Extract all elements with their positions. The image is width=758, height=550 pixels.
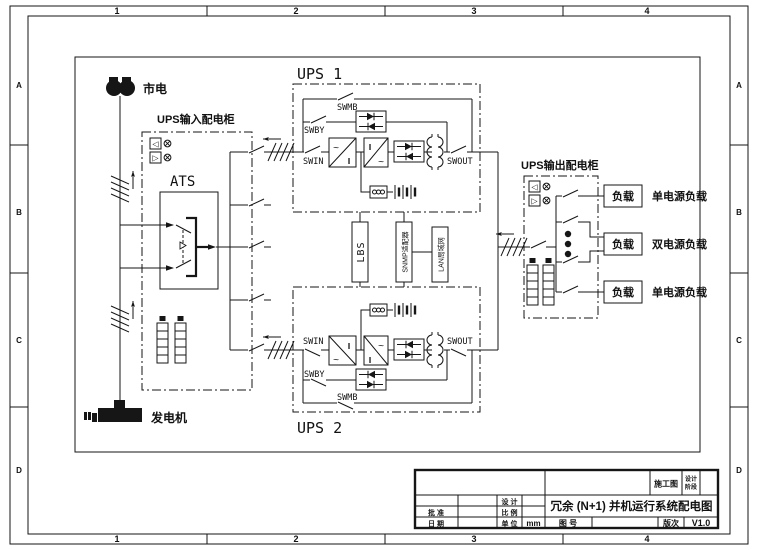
busbar-icon (157, 316, 168, 363)
switch-icon (249, 146, 264, 153)
field-version-value: V1.0 (692, 518, 711, 528)
diode-pair-icon (394, 141, 424, 162)
snmp-label: SNMP适配器 (401, 231, 410, 272)
load-label: 负载 (612, 285, 634, 299)
drawing-title: 冗余 (N+1) 并机运行系统配电图 (550, 499, 713, 513)
fuse-box-icon (370, 304, 387, 316)
rectifier-box: ‖ ~ (329, 336, 356, 366)
busbar-icon (527, 258, 538, 305)
input-cabinet: UPS输入配电柜 ATS (120, 112, 252, 390)
battery-icon (395, 303, 415, 317)
switch-icon (451, 349, 466, 356)
stage-value: 施工图 (654, 479, 678, 489)
battery-icon (395, 185, 415, 199)
load-type-label: 单电源负载 (652, 285, 707, 299)
switch-icon (531, 241, 546, 248)
ats-box (160, 192, 218, 289)
field-approve-label: 批 准 (428, 508, 444, 517)
feeder-branches (230, 137, 294, 359)
ups1-wiring (293, 99, 498, 192)
field-date-label: 日 期 (428, 519, 444, 528)
meter-icon (529, 195, 550, 206)
diode-pair-icon (356, 369, 386, 390)
switch-icon (451, 146, 466, 153)
zone-number: 2 (293, 6, 298, 16)
dc-symbol: ‖ (347, 342, 350, 351)
field-drawing-no-label: 图 号 (559, 519, 577, 528)
ac-symbol: ~ (378, 157, 384, 168)
zone-number: 4 (644, 6, 649, 16)
rectifier-box: ~ ‖ (329, 138, 356, 167)
zone-number: 2 (293, 534, 298, 544)
field-version-label: 版次 (662, 518, 679, 528)
lan-label: LAN局域网 (437, 237, 446, 272)
swout-label: SWOUT (447, 157, 473, 167)
field-unit-label: 单 位 (502, 519, 518, 528)
title-block: 设 计 批 准 比 例 日 期 单 位 mm 施工图 设计 阶段 冗余 (N+1… (415, 470, 718, 528)
ats-switch: ATS (120, 174, 230, 289)
switch-icon (249, 294, 264, 301)
cable-hatch-icon (111, 301, 135, 332)
switch-icon (311, 116, 326, 123)
zone-letter: A (16, 81, 22, 90)
input-cabinet-label: UPS输入配电柜 (157, 112, 235, 126)
output-wiring (498, 152, 604, 350)
zone-letter: C (736, 336, 742, 345)
dc-symbol: ‖ (368, 143, 371, 152)
busbar-icon (543, 258, 554, 305)
stage-label-bottom: 阶段 (685, 483, 697, 491)
swout-label: SWOUT (447, 337, 473, 347)
zone-number: 1 (114, 534, 119, 544)
switch-icon (249, 199, 264, 206)
meter-icon (529, 181, 550, 192)
load-row: 负载 单电源负载 (604, 185, 707, 207)
diode-pair-icon (356, 111, 386, 132)
switch-icon (305, 349, 320, 356)
ac-symbol: ~ (333, 143, 339, 154)
zone-letter: D (16, 466, 22, 475)
switch-icon (563, 216, 578, 223)
zone-letter: C (16, 336, 22, 345)
load-row: 负载 双电源负载 (604, 233, 707, 255)
load-label: 负载 (612, 189, 634, 203)
ups1-unit: UPS 1 SWMB SWBY SWIN SWOUT ~ ‖ ‖ ~ (293, 65, 498, 212)
switch-icon (563, 190, 578, 197)
meter-icon (150, 138, 171, 149)
ups-schematic-svg: ◁ ▷ (0, 0, 758, 550)
swin-label: SWIN (303, 337, 323, 347)
zone-letter: B (16, 208, 22, 217)
meter-icon (150, 152, 171, 163)
generator-label: 发电机 (150, 410, 187, 425)
dc-symbol: ‖ (368, 356, 371, 365)
zone-letter: B (736, 208, 742, 217)
mains-source: 市电 (106, 77, 167, 408)
ups2-unit: UPS 2 SWIN SWOUT SWBY SWMB ‖ ~ ~ ‖ (293, 287, 498, 437)
zone-number: 4 (644, 534, 649, 544)
load-row: 负载 单电源负载 (604, 281, 707, 303)
field-unit-value: mm (526, 519, 540, 528)
load-label: 负载 (612, 237, 634, 251)
swmb-label: SWMB (337, 393, 357, 403)
lbs-label: LBS (356, 241, 367, 262)
cable-hatch-icon (111, 171, 135, 202)
swby-label: SWBY (304, 370, 324, 380)
field-scale-label: 比 例 (502, 508, 518, 517)
ups2-wiring (293, 310, 498, 403)
zone-number: 1 (114, 6, 119, 16)
zone-number: 3 (471, 6, 476, 16)
cable-hatch-icon (496, 232, 527, 256)
switch-icon (563, 286, 578, 293)
switch-icon (249, 241, 264, 248)
mains-label: 市电 (143, 81, 167, 96)
fuse-box-icon (370, 186, 387, 198)
cable-hatch-icon (263, 335, 294, 359)
load-type-label: 双电源负载 (652, 237, 707, 251)
ups2-label: UPS 2 (297, 419, 342, 437)
switch-icon (338, 402, 353, 409)
drawing-sheet: ◁ ▷ (0, 0, 758, 550)
ups1-label: UPS 1 (297, 65, 342, 83)
parallel-modules: LBS SNMP适配器 LAN局域网 (352, 212, 448, 287)
switch-icon (305, 146, 320, 153)
ats-label: ATS (170, 174, 195, 190)
switch-icon (338, 93, 353, 100)
busbar-icon (175, 316, 186, 363)
load-type-label: 单电源负载 (652, 189, 707, 203)
stage-label-top: 设计 (685, 475, 697, 483)
switch-icon (563, 256, 578, 263)
inverter-box: ~ ‖ (364, 336, 388, 365)
cable-hatch-icon (263, 137, 294, 161)
mains-transformer-icon (106, 77, 135, 96)
zone-letter: D (736, 466, 742, 475)
zone-letter: A (736, 81, 742, 90)
zone-number: 3 (471, 534, 476, 544)
inverter-box: ‖ ~ (364, 138, 388, 168)
ac-symbol: ~ (378, 341, 384, 352)
field-design-label: 设 计 (502, 497, 518, 506)
swby-label: SWBY (304, 126, 324, 136)
more-circuits-dots (565, 231, 571, 257)
switch-icon (249, 344, 264, 351)
output-cabinet-label: UPS输出配电柜 (521, 158, 599, 172)
dc-symbol: ‖ (347, 157, 350, 166)
output-section: UPS输出配电柜 负载 单电源负载 负载 双电源负载 负载 单电源负载 (496, 152, 707, 350)
switch-icon (311, 379, 326, 386)
diode-pair-icon (394, 339, 424, 360)
generator-source: 发电机 (84, 400, 187, 425)
ac-symbol: ~ (333, 355, 339, 366)
swin-label: SWIN (303, 157, 323, 167)
generator-icon (84, 400, 142, 422)
swmb-label: SWMB (337, 103, 357, 113)
